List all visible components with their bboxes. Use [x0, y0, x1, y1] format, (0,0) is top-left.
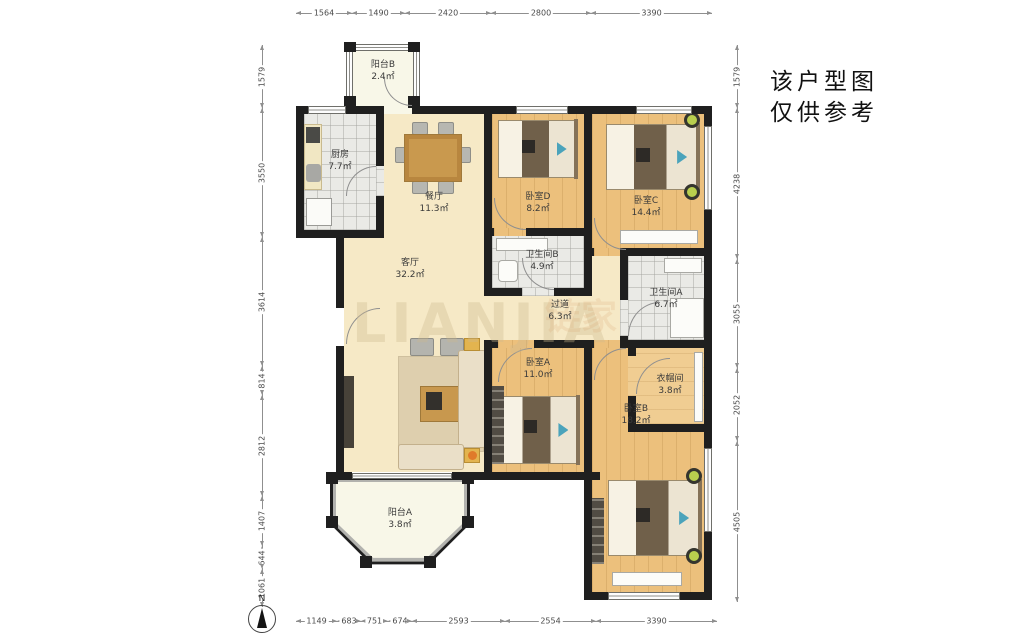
wall-post: [326, 516, 338, 528]
dimension-value: 2800: [529, 10, 553, 19]
decor-bowl: [468, 451, 477, 460]
window: [704, 448, 712, 532]
wall-segment: [626, 340, 712, 348]
dimension-value: 1407: [259, 509, 268, 533]
sofa: [458, 350, 486, 448]
floor-hallway: [492, 296, 620, 340]
shower: [670, 298, 704, 338]
wall-post: [424, 556, 436, 568]
stool: [686, 468, 702, 484]
dimension-value: 3614: [259, 289, 268, 313]
wall-segment: [626, 248, 712, 256]
dimension-segment: 1490: [352, 13, 405, 14]
dimension-value: 3390: [644, 618, 668, 627]
bed-bedroom-c: [606, 124, 698, 190]
bathroom-sink: [496, 238, 548, 251]
dimension-segment: 751: [361, 621, 388, 622]
dimension-segment: 3390: [596, 621, 717, 622]
dimension-value: 2812: [259, 433, 268, 457]
dimension-segment: 2593: [412, 621, 505, 622]
dimension-value: 1564: [312, 10, 336, 19]
wall-post: [360, 556, 372, 568]
stool: [686, 548, 702, 564]
dimension-segment: 2420: [405, 13, 491, 14]
floor-patch: [498, 340, 534, 348]
window: [636, 106, 692, 114]
wall-segment: [336, 472, 352, 480]
dimension-value: 1490: [366, 10, 390, 19]
dimension-segment: 2800: [491, 13, 591, 14]
dimension-value: 674: [390, 618, 409, 627]
dimension-value: 2420: [436, 10, 460, 19]
balcony-a-doorway: [352, 473, 452, 479]
window: [516, 106, 568, 114]
dimension-value: 751: [365, 618, 384, 627]
disclaimer-line2: 仅供参考: [770, 97, 878, 128]
wall-segment: [526, 228, 592, 236]
stool: [684, 112, 700, 128]
north-label: N: [244, 594, 280, 604]
floor-patch: [376, 166, 384, 196]
wall-segment: [584, 340, 592, 600]
dimension-segment: 1579: [262, 45, 263, 108]
sofa: [398, 444, 464, 470]
disclaimer-text: 该户型图 仅供参考: [770, 66, 878, 128]
dimension-segment: 3614: [262, 237, 263, 366]
kitchen-sink: [306, 164, 321, 182]
wall-segment: [296, 106, 304, 238]
floor-hallway-branch: [592, 256, 620, 296]
dimension-value: 2593: [446, 618, 470, 627]
dimension-segment: 1149: [296, 621, 337, 622]
toilet: [498, 260, 518, 282]
dimension-value: 3550: [259, 160, 268, 184]
floor-patch: [628, 356, 636, 396]
wall-segment: [336, 346, 344, 480]
disclaimer-line1: 该户型图: [770, 66, 878, 97]
dimension-value: 3390: [639, 10, 663, 19]
wall-segment: [534, 340, 594, 348]
dimension-segment: 1407: [262, 496, 263, 546]
dimension-value: 683: [339, 618, 358, 627]
wall-segment: [376, 106, 384, 166]
floor-patch: [484, 296, 492, 340]
wall-segment: [620, 248, 628, 300]
armchair: [410, 338, 434, 356]
dining-chair: [438, 181, 454, 194]
wall-segment: [484, 288, 522, 296]
floor-balcony-a: [336, 482, 464, 561]
dimension-segment: 683: [337, 621, 361, 622]
wall-post: [326, 472, 338, 484]
wall-segment: [336, 230, 344, 308]
compass-circle: [248, 605, 276, 633]
window-seat: [620, 230, 698, 244]
dimension-value: 1579: [734, 64, 743, 88]
wall-segment: [628, 424, 712, 432]
dimension-value: 4238: [734, 171, 743, 195]
stool: [684, 184, 700, 200]
wall-segment: [376, 196, 384, 238]
wall-segment: [584, 248, 594, 256]
dimension-segment: 2554: [505, 621, 596, 622]
north-compass: N: [244, 594, 280, 638]
dimension-segment: 3550: [262, 108, 263, 237]
dimension-value: 644: [259, 548, 268, 567]
dining-chair: [412, 181, 428, 194]
dimension-segment: 3390: [591, 13, 712, 14]
bed-decor: [636, 508, 650, 522]
wall-segment: [628, 348, 636, 356]
side-table: [464, 338, 480, 351]
dimension-segment: 3055: [737, 259, 738, 368]
bed-decor: [522, 140, 535, 153]
coffee-table-decor: [426, 392, 442, 410]
dimension-value: 2052: [734, 392, 743, 416]
wall-post: [462, 472, 474, 484]
floor-patch: [620, 300, 628, 336]
wall-segment: [452, 472, 600, 480]
bed-decor: [524, 420, 537, 433]
dimension-segment: 4505: [737, 441, 738, 602]
dimension-segment: 4238: [737, 108, 738, 259]
wardrobe: [592, 498, 604, 564]
wall-post: [408, 42, 420, 52]
dimension-value: 1149: [304, 618, 328, 627]
dimension-segment: 1564: [296, 13, 352, 14]
bed-decor: [636, 148, 650, 162]
window: [608, 592, 680, 600]
wall-segment: [484, 228, 494, 236]
dimension-segment: 2052: [737, 368, 738, 441]
bed-bedroom-a: [498, 396, 578, 464]
wall-segment: [484, 340, 498, 348]
window-seat: [612, 572, 682, 586]
dimension-value: 1579: [259, 64, 268, 88]
dimension-value: 3055: [734, 301, 743, 325]
dimension-segment: 2812: [262, 395, 263, 496]
dimension-value: 4505: [734, 509, 743, 533]
wall-segment: [584, 106, 592, 296]
wall-post: [462, 516, 474, 528]
dimension-segment: 814: [262, 366, 263, 395]
wall-post: [344, 42, 356, 52]
fridge: [306, 198, 332, 226]
dimension-value: 2554: [538, 618, 562, 627]
dimension-segment: 674: [388, 621, 412, 622]
window: [704, 126, 712, 210]
wall-segment: [484, 340, 492, 480]
bed-bedroom-b: [608, 480, 700, 556]
cloakroom-shelf: [694, 352, 703, 422]
bed-bedroom-d: [498, 120, 576, 178]
bathroom-sink: [664, 258, 702, 273]
dining-table: [404, 134, 462, 182]
north-arrow-icon: [257, 608, 267, 628]
stove: [306, 127, 320, 143]
dimension-segment: 1579: [737, 45, 738, 108]
tv-cabinet: [344, 376, 354, 448]
wall-segment: [484, 106, 492, 296]
floorplan-canvas: LIANJIA 链家 阳台B 2.4㎡ 厨房 7.7㎡ 餐厅 11.3㎡ 客厅 …: [0, 0, 1029, 640]
dimension-segment: 644: [262, 546, 263, 569]
wardrobe: [492, 386, 504, 464]
dimension-value: 814: [259, 371, 268, 390]
window: [308, 106, 346, 114]
